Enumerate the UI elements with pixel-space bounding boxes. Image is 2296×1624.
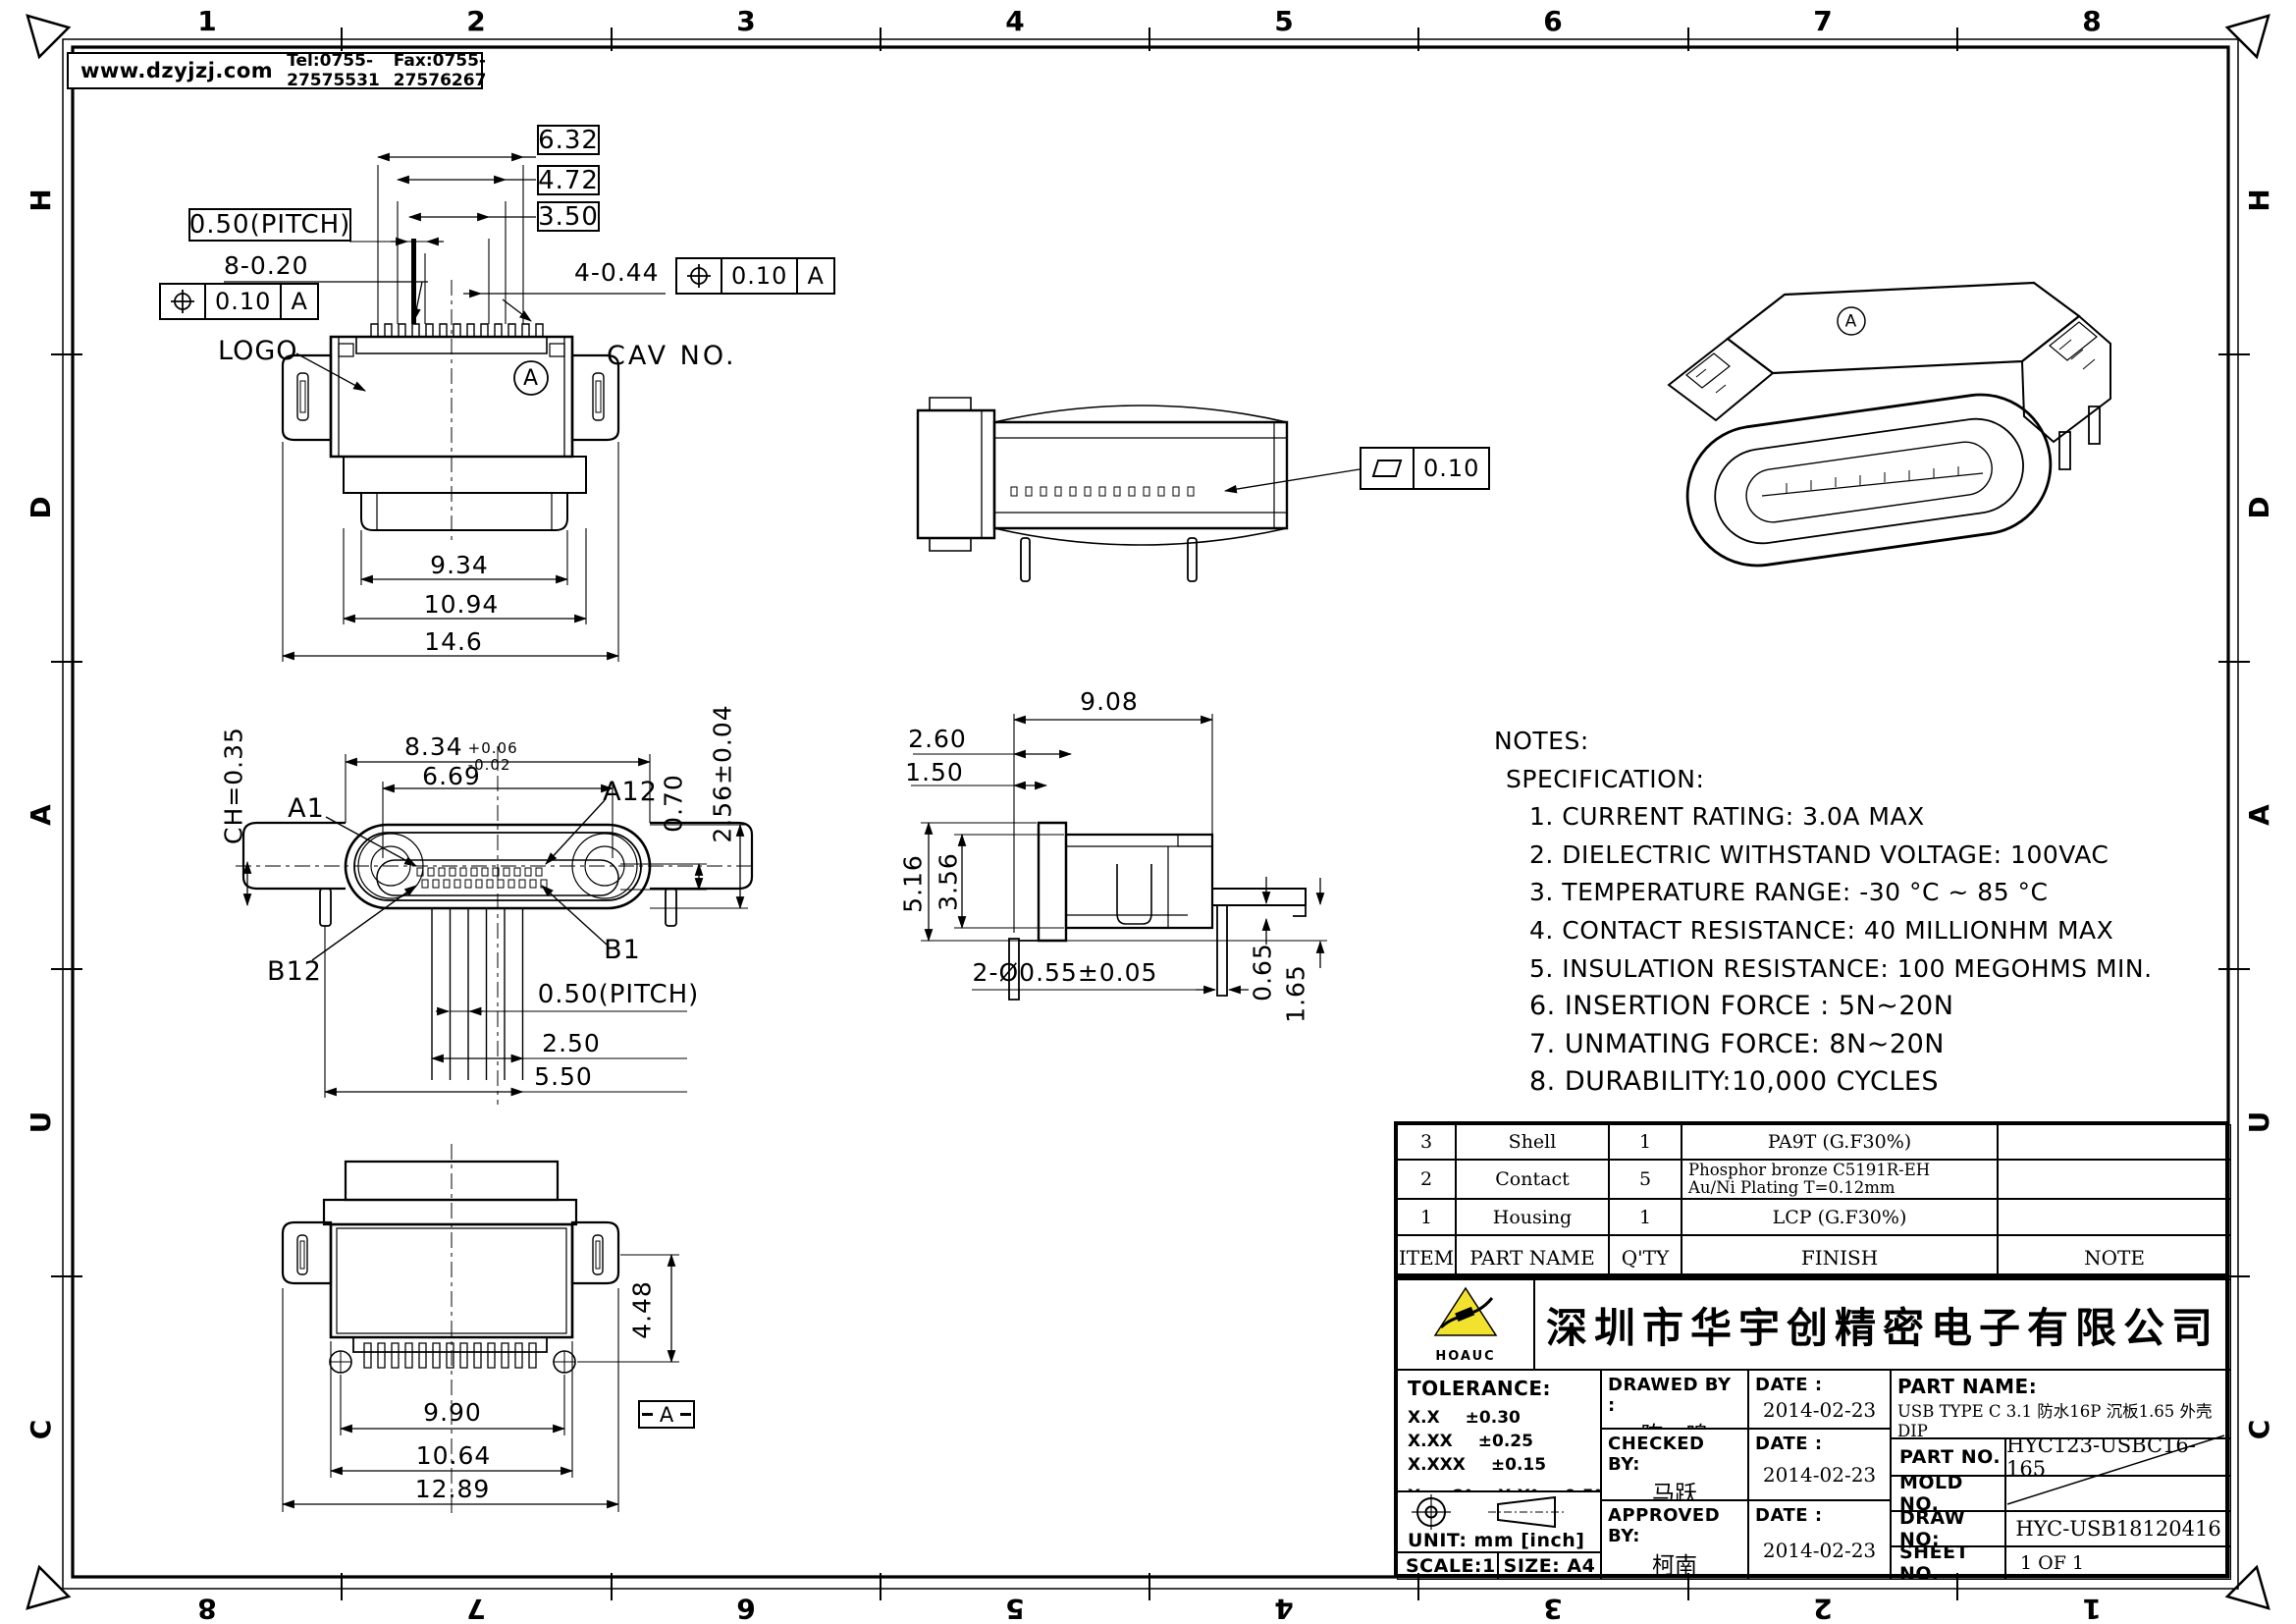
part-item-no: 1: [1397, 1199, 1456, 1235]
part-name-value: USB TYPE C 3.1 防水16P 沉板1.65 外壳DIP: [1897, 1398, 2224, 1438]
part-note: [1998, 1124, 2231, 1160]
notes-subtitle: SPECIFICATION:: [1506, 761, 2153, 799]
note-item: 1. CURRENT RATING: 3.0A MAX: [1529, 798, 2153, 837]
dim-3-56: 3.56: [936, 852, 961, 911]
col-header-finish: FINISH: [1682, 1235, 1998, 1279]
part-no-label: PART NO.: [1891, 1438, 2005, 1476]
draw-no-label: DRAW NO:: [1891, 1511, 2005, 1546]
zone-bottom-2: 7: [466, 1595, 485, 1622]
checked-by-name: 马跃: [1608, 1475, 1741, 1500]
checked-date: 2014-02-23: [1755, 1454, 1884, 1495]
zone-bottom-4: 5: [1005, 1595, 1024, 1622]
cav-no-callout: CAV NO.: [607, 343, 737, 369]
drawn-by-name: 陈一鸣: [1608, 1416, 1741, 1429]
datum-a-flag: A: [638, 1400, 695, 1429]
zone-left-5: C: [27, 1420, 55, 1440]
pin-label-a12: A12: [603, 779, 658, 805]
pin-label-a1: A1: [288, 795, 325, 822]
engineering-drawing-sheet: 1 2 3 4 5 6 7 8 8 7 6 5 4 3 2 1 H D A U …: [0, 0, 2296, 1624]
zone-left-2: D: [27, 496, 55, 518]
note-item: 3. TEMPERATURE RANGE: -30 °C ~ 85 °C: [1529, 874, 2153, 912]
dim-5-50: 5.50: [534, 1064, 593, 1089]
zone-top-8: 8: [2082, 8, 2101, 35]
zone-bottom-3: 6: [736, 1595, 755, 1622]
part-qty: 1: [1609, 1124, 1682, 1160]
dim-9-08: 9.08: [1080, 689, 1139, 714]
col-header-qty: Q'TY: [1609, 1235, 1682, 1279]
company-logo: HOAUC: [1397, 1279, 1534, 1370]
part-finish: PA9T (G.F30%): [1682, 1124, 1998, 1160]
part-no-value: HYC123-USBC16-165: [2005, 1438, 2231, 1476]
dim-5-16: 5.16: [901, 854, 926, 913]
dim-2-60: 2.60: [908, 727, 967, 751]
drawn-date: 2014-02-23: [1755, 1395, 1884, 1424]
unit-label: UNIT: mm [inch]: [1398, 1530, 1600, 1551]
header-contact-strip: www.dzyjzj.com Tel:0755-27575531 Fax:075…: [67, 52, 483, 89]
part-finish: Phosphor bronze C5191R-EH Au/Ni Plating …: [1682, 1160, 1998, 1199]
tol-row-value: ±0.15: [1491, 1455, 1546, 1475]
finish-line-2: Au/Ni Plating T=0.12mm: [1688, 1179, 1895, 1197]
part-item-no: 3: [1397, 1124, 1456, 1160]
company-name: 深圳市华宇创精密电子有限公司: [1534, 1279, 2231, 1370]
parts-table: 3 Shell 1 PA9T (G.F30%) 2 Contact 5 Phos…: [1394, 1121, 2228, 1276]
dim-box-6-32: 6.32: [537, 125, 600, 155]
position-fcf-2: 0.10 A: [675, 257, 835, 295]
dim-1-50: 1.50: [905, 760, 964, 785]
dim-2-50: 2.50: [542, 1031, 601, 1056]
zone-right-2: D: [2246, 496, 2273, 518]
dim-4-48: 4.48: [630, 1280, 655, 1339]
part-name: Contact: [1456, 1160, 1609, 1199]
datum-a-letter: A: [523, 368, 539, 390]
isometric-view-linework: [1669, 283, 2110, 574]
date-label: DATE :: [1755, 1434, 1884, 1454]
dim-10-64: 10.64: [416, 1443, 492, 1468]
note-item: 7. UNMATING FORCE: 8N~20N: [1529, 1026, 2153, 1064]
dim-pitch: 0.50(PITCH): [538, 982, 700, 1007]
dim-4-044: 4-0.44: [574, 260, 660, 285]
zone-left-3: A: [27, 804, 55, 826]
fcf-datum-ref: A: [798, 259, 832, 293]
col-header-note: NOTE: [1998, 1235, 2231, 1279]
scale-label: SCALE:1:1: [1397, 1552, 1498, 1580]
company-website: www.dzyjzj.com: [80, 59, 273, 82]
approved-by-cell: APPROVED BY: 柯南: [1601, 1500, 1748, 1580]
iso-datum-a-letter: A: [1845, 314, 1858, 331]
zone-bottom-7: 2: [1813, 1595, 1832, 1622]
flatness-icon: [1362, 449, 1415, 488]
tol-row-value: ±0.30: [1466, 1408, 1521, 1428]
zone-top-5: 5: [1274, 8, 1293, 35]
zone-bottom-6: 3: [1543, 1595, 1562, 1622]
flatness-fcf: 0.10: [1360, 447, 1490, 490]
title-block: HOAUC 深圳市华宇创精密电子有限公司 TOLERANCE: X.X±0.30…: [1394, 1276, 2228, 1577]
fcf-tolerance: 0.10: [722, 259, 798, 293]
checked-date-cell: DATE : 2014-02-23: [1748, 1429, 1891, 1500]
dim-1-65: 1.65: [1284, 964, 1308, 1023]
dim-6-69: 6.69: [422, 764, 481, 788]
approved-by-label: APPROVED BY:: [1608, 1505, 1741, 1546]
hoauc-logo-icon: [1423, 1286, 1508, 1349]
finish-line-1: Phosphor bronze C5191R-EH: [1688, 1162, 1930, 1179]
approved-date-cell: DATE : 2014-02-23: [1748, 1500, 1891, 1580]
zone-right-1: H: [2246, 189, 2273, 211]
logo-callout: LOGO: [218, 338, 298, 364]
dim-2-56: 2.56±0.04: [711, 704, 735, 842]
tol-row-label: X.XXX: [1408, 1455, 1466, 1475]
dim-0-70: 0.70: [662, 774, 686, 833]
dim-12-89: 12.89: [415, 1477, 491, 1501]
approved-by-name: 柯南: [1608, 1546, 1741, 1580]
tol-row-label: X.X: [1408, 1408, 1440, 1428]
drawn-by-label: DRAWED BY :: [1608, 1375, 1741, 1416]
zone-left-4: U: [27, 1111, 55, 1134]
drawn-date-cell: DATE : 2014-02-23: [1748, 1370, 1891, 1429]
notes-block: NOTES: SPECIFICATION: 1. CURRENT RATING:…: [1494, 723, 2153, 1102]
part-note: [1998, 1160, 2231, 1199]
part-name-label: PART NAME:: [1897, 1375, 2224, 1398]
projection-unit-cell: UNIT: mm [inch]: [1397, 1491, 1601, 1552]
tolerance-label: TOLERANCE:: [1398, 1377, 1600, 1400]
position-tolerance-icon: [161, 285, 206, 318]
col-header-part-name: PART NAME: [1456, 1235, 1609, 1279]
notes-title: NOTES:: [1494, 723, 2153, 761]
part-name-cell: PART NAME: USB TYPE C 3.1 防水16P 沉板1.65 外…: [1891, 1370, 2231, 1438]
zone-top-3: 3: [736, 8, 755, 35]
dim-box-pitch: 0.50(PITCH): [188, 208, 351, 242]
note-item: 4. CONTACT RESISTANCE: 40 MILLIONHM MAX: [1529, 912, 2153, 950]
dim-holes: 2-Ø0.55±0.05: [973, 960, 1158, 985]
zone-right-4: U: [2246, 1111, 2273, 1134]
corner-mark-icon: [2227, 16, 2269, 57]
note-item: 8. DURABILITY:10,000 CYCLES: [1529, 1063, 2153, 1102]
part-note: [1998, 1199, 2231, 1235]
dim-8-34-value: 8.34: [404, 732, 463, 761]
position-fcf-1: 0.10 A: [159, 283, 319, 320]
dim-10-94: 10.94: [424, 592, 500, 617]
third-angle-projection-icon: [1410, 1494, 1601, 1530]
note-item: 5. INSULATION RESISTANCE: 100 MEGOHMS MI…: [1529, 950, 2153, 989]
dim-0-65: 0.65: [1251, 943, 1275, 1001]
zone-top-7: 7: [1813, 8, 1832, 35]
datum-dash: [680, 1413, 691, 1416]
zone-top-6: 6: [1543, 8, 1562, 35]
part-name: Housing: [1456, 1199, 1609, 1235]
part-name: Shell: [1456, 1124, 1609, 1160]
dim-8-34-tol-plus: +0.06: [468, 740, 518, 757]
side-view-linework: [918, 398, 1360, 581]
draw-no-value: HYC-USB18120416: [2005, 1511, 2231, 1546]
zone-bottom-5: 4: [1274, 1595, 1293, 1622]
mold-no-label: MOLD NO.: [1891, 1476, 2005, 1511]
checked-by-label: CHECKED BY:: [1608, 1434, 1741, 1475]
col-header-item: ITEM: [1397, 1235, 1456, 1279]
part-qty: 5: [1609, 1160, 1682, 1199]
zone-right-3: A: [2246, 804, 2273, 826]
dim-9-90: 9.90: [423, 1400, 482, 1425]
part-finish: LCP (G.F30%): [1682, 1199, 1998, 1235]
zone-bottom-1: 8: [197, 1595, 216, 1622]
zone-bottom-8: 1: [2082, 1595, 2101, 1622]
dim-ch-035: CH=0.35: [222, 727, 246, 844]
mold-no-value-empty: [2005, 1476, 2231, 1511]
dim-9-34: 9.34: [430, 553, 489, 577]
zone-left-1: H: [27, 189, 55, 211]
note-item: 6. INSERTION FORCE : 5N~20N: [1529, 988, 2153, 1026]
zone-top-2: 2: [466, 8, 485, 35]
date-label: DATE :: [1755, 1375, 1884, 1395]
tol-row-label: X.XX: [1408, 1432, 1453, 1451]
tolerance-cell: TOLERANCE: X.X±0.30 X.XX±0.25 X.XXX±0.15…: [1397, 1370, 1601, 1491]
dim-8-020: 8-0.20: [224, 253, 309, 278]
position-tolerance-icon: [677, 259, 722, 293]
company-fax: Fax:0755-27576267: [394, 51, 487, 90]
approved-date: 2014-02-23: [1755, 1526, 1884, 1575]
zone-top-1: 1: [197, 8, 216, 35]
flatness-tolerance: 0.10: [1415, 449, 1488, 488]
tol-row-value: ±0.25: [1478, 1432, 1533, 1451]
zone-right-5: C: [2246, 1420, 2273, 1440]
sheet-no-value: 1 OF 1: [2005, 1546, 2231, 1580]
size-label: SIZE: A4: [1498, 1552, 1601, 1580]
fcf-tolerance: 0.10: [206, 285, 282, 318]
pin-label-b12: B12: [267, 958, 322, 985]
company-tel: Tel:0755-27575531: [287, 51, 380, 90]
sheet-no-label: SHEET NO.: [1891, 1546, 2005, 1580]
fcf-datum-ref: A: [282, 285, 316, 318]
drawn-by-cell: DRAWED BY : 陈一鸣: [1601, 1370, 1748, 1429]
dim-box-3-50: 3.50: [537, 201, 600, 232]
datum-dash: [642, 1413, 653, 1416]
dim-14-6: 14.6: [424, 629, 483, 654]
pin-label-b1: B1: [604, 937, 641, 963]
corner-mark-icon: [2227, 1567, 2269, 1608]
part-qty: 1: [1609, 1199, 1682, 1235]
part-item-no: 2: [1397, 1160, 1456, 1199]
datum-a-letter: A: [660, 1403, 673, 1427]
date-label: DATE :: [1755, 1505, 1884, 1526]
logo-text: HOAUC: [1435, 1349, 1495, 1364]
zone-top-4: 4: [1005, 8, 1024, 35]
note-item: 2. DIELECTRIC WITHSTAND VOLTAGE: 100VAC: [1529, 837, 2153, 875]
dim-box-4-72: 4.72: [537, 165, 600, 195]
checked-by-cell: CHECKED BY: 马跃: [1601, 1429, 1748, 1500]
